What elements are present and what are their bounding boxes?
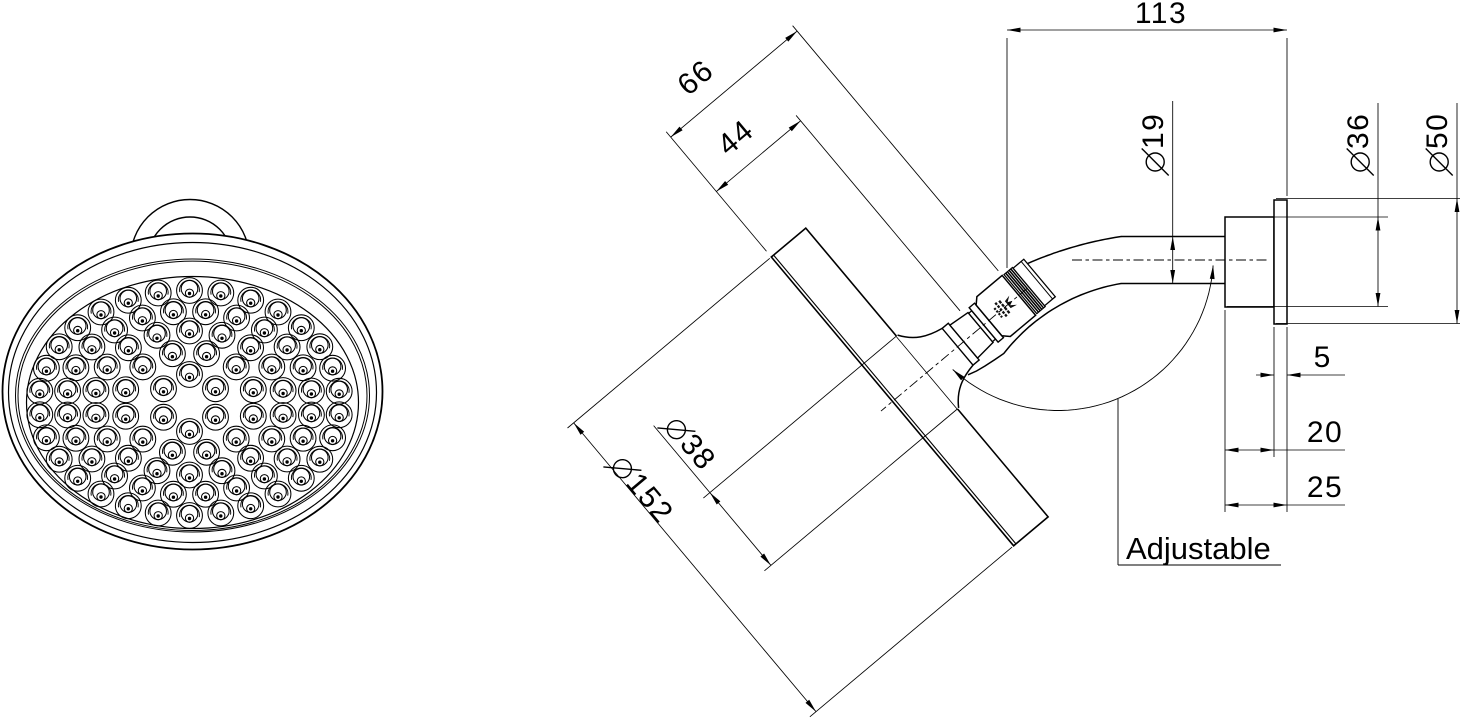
- svg-text:20: 20: [1307, 416, 1343, 449]
- svg-text:25: 25: [1307, 471, 1343, 504]
- svg-text:38: 38: [673, 428, 722, 477]
- svg-text:5: 5: [1314, 341, 1331, 374]
- svg-text:113: 113: [1135, 0, 1187, 30]
- svg-text:44: 44: [711, 113, 760, 162]
- svg-text:50: 50: [1421, 113, 1454, 149]
- svg-text:19: 19: [1137, 113, 1170, 149]
- svg-text:Adjustable: Adjustable: [1126, 531, 1271, 566]
- svg-text:66: 66: [671, 53, 720, 102]
- svg-text:36: 36: [1342, 113, 1375, 149]
- svg-text:152: 152: [619, 467, 679, 530]
